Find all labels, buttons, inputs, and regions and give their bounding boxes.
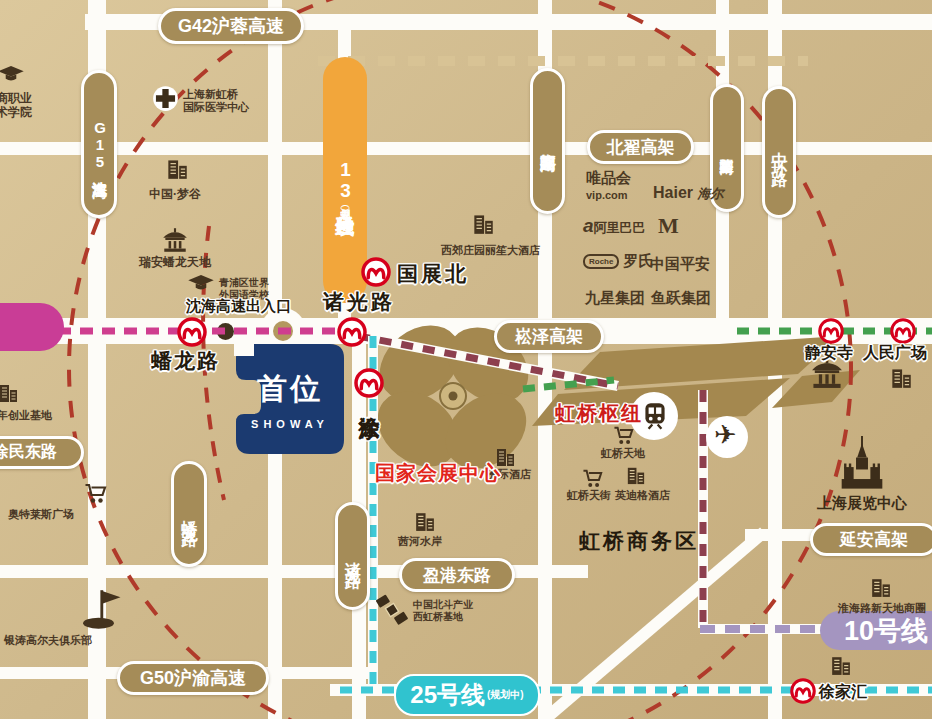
station-guozhanbei: 国展北: [397, 260, 469, 288]
building-icon: [888, 364, 914, 390]
medical-cross-icon: [152, 85, 179, 112]
badge-yanan-label: 延安高架: [840, 528, 908, 551]
train-icon: [639, 400, 671, 432]
outlets-label: 奥特莱斯广场: [8, 507, 74, 522]
station-panlonglu: 蟠龙路: [151, 347, 220, 375]
project-name: 首位: [257, 369, 323, 410]
xijiao-hotel-label: 西郊庄园丽笙大酒店: [441, 243, 540, 258]
badge-g15-label: G15沈海高速: [90, 119, 109, 170]
badge-xumin: 徐民东路: [0, 436, 84, 469]
building-icon: [470, 210, 496, 236]
badge-xumin-label: 徐民东路: [0, 442, 57, 463]
golf-club-label: 银涛高尔夫俱乐部: [4, 633, 92, 648]
metro-icon-jingansi: [818, 318, 844, 344]
medical-center-label: 上海新虹桥 国际医学中心: [183, 88, 249, 113]
company-vip: 唯品会 vip.com: [586, 170, 631, 202]
line10-label: 10号线: [844, 613, 928, 649]
building-icon: [164, 155, 190, 181]
metro-icon-panlonglu: [177, 317, 207, 347]
station-zhuguanglu: 诸光路: [323, 288, 395, 316]
badge-g50-label: G50沪渝高速: [140, 666, 246, 690]
building-icon: [868, 574, 893, 599]
badge-g50: G50沪渝高速: [117, 661, 269, 695]
xihe-label: 茜河水岸: [398, 534, 442, 549]
exhibition-center-label: 上海展览中心: [817, 494, 907, 513]
project-name-en: SHOWAY: [251, 418, 329, 430]
satellite-icon: [376, 594, 408, 626]
beidou-label: 中国北斗产业 西虹桥基地: [413, 599, 473, 622]
building-icon: [0, 380, 20, 404]
line25-note: (规划中): [487, 688, 524, 702]
badge-yinggang-label: 盈港东路: [423, 564, 491, 587]
roche-hexagon-logo: Roche: [583, 254, 619, 269]
company-jiuxing: 九星集团: [585, 289, 645, 308]
badge-g42: G42沪蓉高速: [158, 8, 304, 44]
badge-panlong-road-label: 蟠龙路: [179, 507, 200, 522]
metro-icon-renmin: [890, 318, 916, 344]
necc-label: 国家会展中心: [375, 460, 501, 487]
indigo-hotel-label: 英迪格酒店: [615, 488, 670, 503]
badge-panlong-road: 蟠龙路: [171, 461, 207, 567]
hongqiao-tiandi-label: 虹桥天地: [601, 446, 645, 461]
badge-line10: 10号线: [820, 611, 932, 650]
company-m-logo: M: [658, 213, 679, 239]
temple-icon: [160, 227, 190, 253]
badge-line25: 25号线(规划中): [394, 674, 540, 716]
badge-g42-label: G42沪蓉高速: [178, 14, 284, 38]
golf-flag-icon: [82, 588, 126, 632]
badge-yinggang: 盈港东路: [399, 558, 515, 592]
company-haier: Haier 海尔: [653, 184, 723, 203]
badge-zhonghuan-label: 中环路: [769, 139, 790, 166]
metro-icon-xujingdong: [354, 368, 384, 398]
hongqiao-tianjie-label: 虹桥天街: [567, 488, 611, 503]
qingnian-base-label: 青年创业基地: [0, 408, 52, 423]
showay-logo: 首位 SHOWAY: [234, 342, 346, 456]
huaihai-label: 淮海路新天地商圈: [838, 601, 926, 616]
line25-label: 25号线: [410, 679, 485, 711]
line17-terminus-blob: [0, 303, 64, 351]
company-alibaba: a阿里巴巴: [583, 215, 646, 237]
station-xujiahui: 徐家汇: [819, 682, 867, 703]
cart-icon: [582, 469, 604, 489]
mengu-label: 中国·梦谷: [149, 186, 201, 203]
airplane-icon: ✈: [714, 419, 737, 451]
badge-g15: G15沈海高速: [81, 70, 117, 218]
station-jingansi: 静安寺: [805, 343, 853, 364]
exhibition-center-icon: [838, 436, 886, 491]
badge-beidi: 北翟高架: [587, 130, 694, 164]
company-yuyue: 鱼跃集团: [651, 289, 711, 308]
badge-zhuguang-road-label: 诸光路: [342, 549, 363, 564]
line13-label: 13号线延伸段: [332, 159, 358, 201]
location-map: G42沪蓉高速 北翟高架 崧泽高架 延安高架 盈港东路 G50沪渝高速 徐民东路…: [0, 0, 932, 719]
cart-icon: [84, 483, 108, 505]
cart-icon: [613, 426, 635, 446]
badge-songze: 崧泽高架: [494, 320, 604, 353]
badge-zhuguang-road: 诸光路: [335, 502, 370, 610]
badge-zhonghuan: 中环路: [762, 86, 796, 218]
metro-icon-xujiahui: [790, 678, 816, 704]
badge-yanan: 延安高架: [810, 523, 932, 556]
hongqiao-hub-label: 虹桥枢纽: [555, 400, 643, 427]
badge-songze-label: 崧泽高架: [515, 325, 583, 348]
company-roche: Roche 罗氏: [583, 252, 653, 271]
badge-jiamin: 嘉闵高架路: [530, 68, 565, 214]
graduation-cap-icon: [0, 66, 24, 84]
panlong-tiandi-label: 瑞安蟠龙天地: [139, 254, 211, 271]
metro-icon-guozhanbei: [361, 257, 391, 287]
hongqiao-cbd-label: 虹桥商务区: [579, 527, 699, 555]
building-icon: [828, 652, 853, 677]
college-label: 工商职业 技术学院: [0, 92, 32, 120]
graduation-cap-icon: [188, 275, 214, 293]
station-renmin: 人民广场: [863, 343, 927, 364]
badge-beidi-label: 北翟高架: [607, 136, 675, 159]
building-icon: [412, 508, 437, 533]
building-icon: [624, 463, 647, 486]
highway-exit-label: 沈海高速出入口: [186, 297, 291, 316]
company-pingan: 中国平安: [650, 255, 710, 274]
